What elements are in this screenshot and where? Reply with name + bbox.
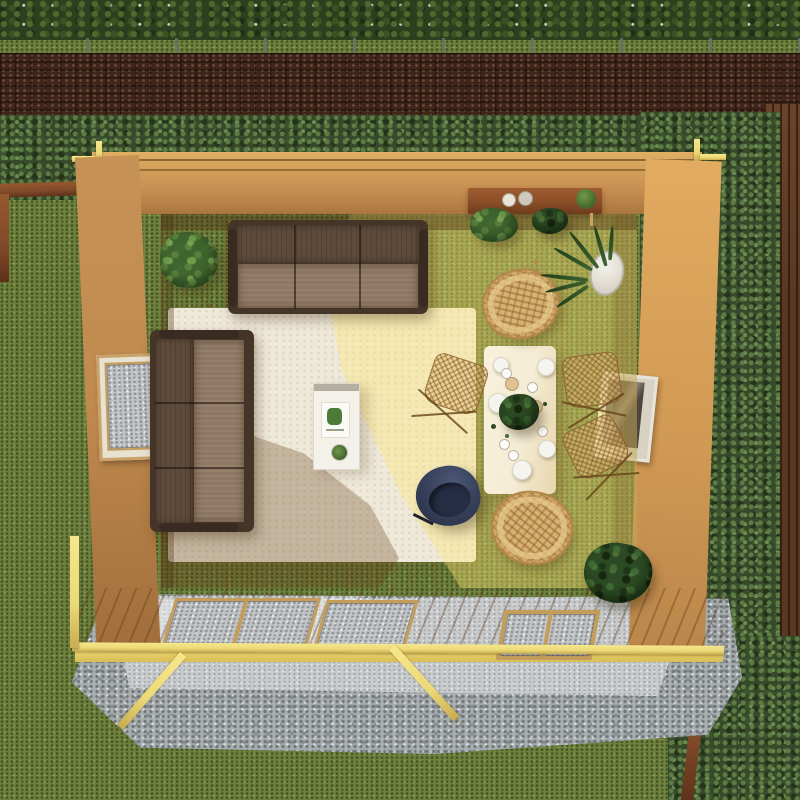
sofa-arm	[419, 229, 428, 307]
wall-plate-beam	[92, 159, 702, 161]
saucer	[505, 377, 519, 391]
scattered-leaf	[491, 424, 496, 429]
table-edge-shadow	[314, 384, 359, 391]
plate	[537, 358, 555, 376]
scattered-leaf	[543, 402, 547, 406]
sofa-arm	[159, 330, 239, 339]
corner-beam-top-right	[700, 154, 726, 160]
plant-pot	[586, 247, 629, 299]
drinking-glass	[499, 439, 510, 450]
trailing-plant-under-desk	[470, 208, 518, 242]
sofa-arm	[228, 229, 237, 307]
sofa-back-cushions	[155, 338, 193, 524]
garden-cabin-aerial-render	[0, 0, 800, 800]
sofa-back-cushions	[236, 225, 420, 263]
glazing-mullion	[232, 601, 249, 645]
brick-wall	[0, 53, 800, 118]
chair-seat-well	[426, 479, 474, 521]
mug	[518, 191, 533, 206]
mug	[502, 193, 516, 207]
tall-potted-plant	[546, 214, 641, 304]
cabin-wall-top	[92, 152, 702, 214]
drinking-glass	[537, 426, 548, 437]
drinking-glass	[508, 450, 519, 461]
cushion-seam	[155, 402, 244, 404]
drinking-glass	[527, 382, 538, 393]
desk-plant-small	[576, 189, 596, 209]
sofa-left	[150, 330, 254, 532]
magazine-cover-plant	[327, 408, 342, 425]
sofa-top	[228, 220, 428, 314]
wall-plate-beam	[92, 169, 702, 171]
plate	[512, 460, 532, 480]
front-glazed-panel	[161, 598, 321, 648]
small-potted-plant	[331, 444, 348, 461]
hedge-top	[0, 0, 800, 40]
sofa-seat-cushions	[194, 340, 244, 522]
magazine-title-line	[326, 429, 344, 431]
cushion-seam	[294, 225, 296, 309]
wall-coping	[0, 38, 800, 54]
planter-rail-left	[0, 194, 9, 282]
scattered-leaf	[505, 434, 509, 438]
plate	[538, 440, 556, 458]
coffee-table	[313, 383, 360, 470]
potted-plant-top-left	[160, 232, 218, 288]
magazine	[321, 402, 350, 438]
cushion-seam	[359, 225, 361, 309]
sofa-arm	[159, 523, 239, 532]
cushion-seam	[155, 467, 244, 469]
drinking-glass	[501, 368, 512, 379]
corner-post-bottom-left	[70, 536, 79, 648]
front-glazed-panel	[313, 600, 419, 648]
sofa-seat-cushions	[238, 264, 418, 308]
log-cabin	[68, 148, 728, 668]
wire-dining-chair	[561, 350, 624, 409]
